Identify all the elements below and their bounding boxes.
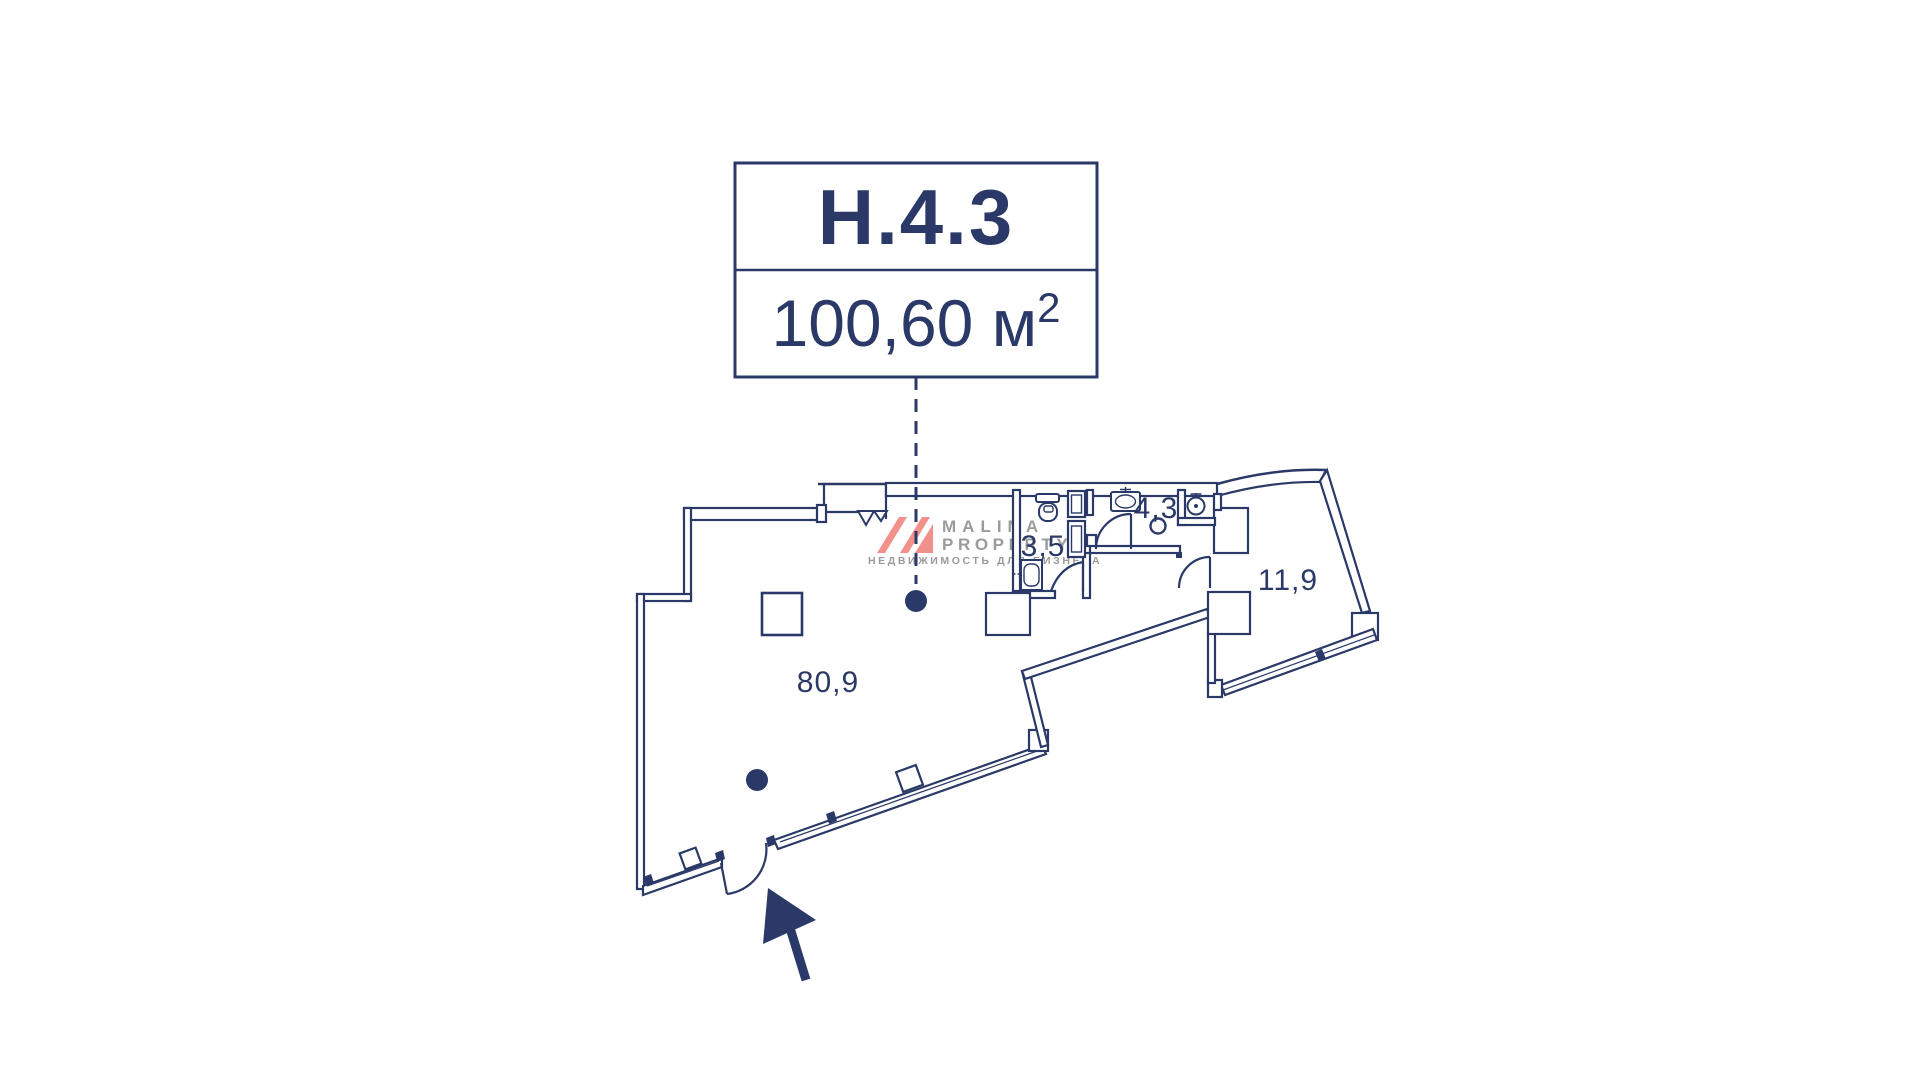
wall-heater-nook-bottom [1178, 518, 1215, 525]
room-label-wc: 4,3 [1134, 492, 1179, 525]
wall-left-lower [637, 594, 644, 889]
wall-stub [1087, 535, 1096, 546]
unit-area-value: 100,60 м [772, 286, 1038, 360]
unit-number: Н.4.3 [818, 173, 1014, 261]
hall-door [1176, 552, 1210, 588]
floor-plan-canvas: MALINA PROPERTY НЕДВИЖИМОСТЬ ДЛЯ БИЗНЕСА [0, 0, 1920, 1080]
entrance-door [721, 843, 766, 894]
wall-wc-left [1087, 490, 1093, 515]
wall-hall-diagonal [1022, 609, 1210, 679]
wall-top-left [684, 508, 825, 520]
malina-logo-icon [877, 517, 933, 553]
title-card: Н.4.3 100,60 м2 [735, 163, 1097, 377]
shaft-box [1214, 508, 1248, 553]
wall-side-room-left [1208, 633, 1215, 683]
folding-door-leaf [858, 511, 874, 525]
window-wall-bottom-right [774, 745, 1046, 849]
wall-left-upper [684, 508, 691, 601]
column-box [762, 593, 802, 635]
wall-stub [1214, 494, 1221, 510]
room-dot [746, 769, 768, 791]
shaft-box [1208, 592, 1250, 634]
shaft-box [986, 593, 1030, 635]
wall-wc-bottom [1090, 546, 1180, 553]
toilet-icon [1036, 494, 1059, 521]
room-label-bathroom: 3,5 [1021, 530, 1066, 563]
leader [746, 377, 927, 791]
wall-bathroom-left [1013, 490, 1020, 595]
room-label-side: 11,9 [1258, 564, 1318, 597]
entrance-arrow-icon [763, 888, 816, 980]
wc-door [1096, 514, 1131, 549]
folding-door-leaf [874, 511, 887, 521]
unit-area: 100,60 м2 [772, 284, 1061, 360]
leader-dot [905, 590, 927, 612]
wall-pier [817, 505, 826, 522]
floor-plan-page: MALINA PROPERTY НЕДВИЖИМОСТЬ ДЛЯ БИЗНЕСА [0, 0, 1920, 1080]
wall-side-room-right [1320, 470, 1370, 613]
unit-area-superscript: 2 [1037, 284, 1060, 331]
room-label-main: 80,9 [797, 666, 859, 699]
